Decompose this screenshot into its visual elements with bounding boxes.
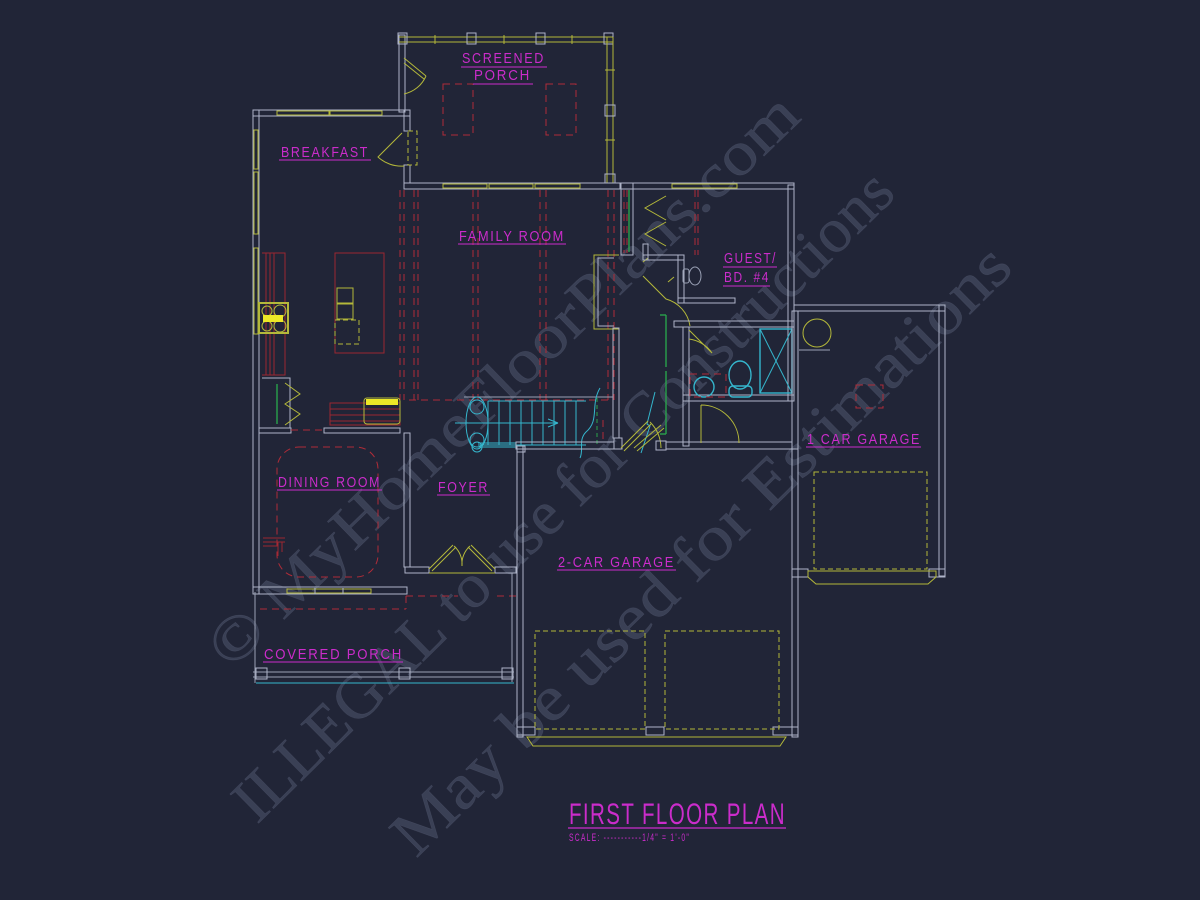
svg-text:BREAKFAST: BREAKFAST — [281, 144, 369, 161]
svg-text:BD. #4: BD. #4 — [724, 269, 770, 286]
svg-text:SCREENED: SCREENED — [462, 50, 545, 67]
svg-text:2-CAR GARAGE: 2-CAR GARAGE — [558, 554, 675, 571]
svg-text:PORCH: PORCH — [474, 67, 531, 84]
svg-text:1 CAR GARAGE: 1 CAR GARAGE — [807, 431, 921, 448]
svg-text:FIRST FLOOR PLAN: FIRST FLOOR PLAN — [569, 798, 786, 831]
svg-text:DINING ROOM: DINING ROOM — [278, 474, 381, 491]
svg-text:FOYER: FOYER — [438, 479, 489, 496]
svg-text:SCALE: -----------1/4" = 1'-0": SCALE: -----------1/4" = 1'-0" — [569, 832, 690, 844]
svg-text:GUEST/: GUEST/ — [724, 250, 777, 267]
svg-text:COVERED PORCH: COVERED PORCH — [264, 646, 403, 663]
svg-text:FAMILY ROOM: FAMILY ROOM — [459, 228, 565, 245]
